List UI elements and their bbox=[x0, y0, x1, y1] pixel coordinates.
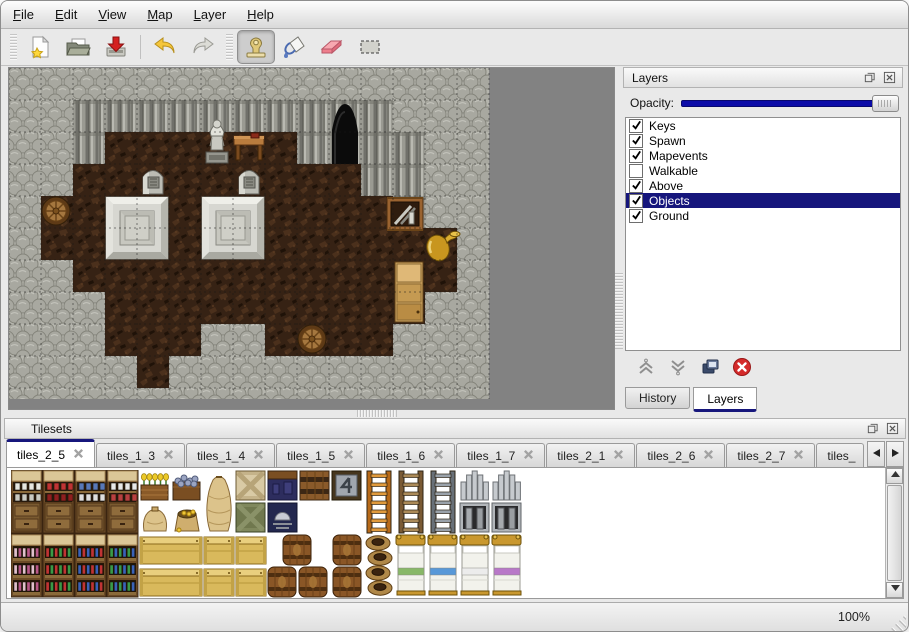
tileset-tab-label: tiles_1_7 bbox=[467, 449, 515, 463]
save-button[interactable] bbox=[97, 30, 135, 64]
zoom-level: 100% bbox=[838, 610, 870, 624]
tileset-tab-label: tiles_2_7 bbox=[737, 449, 785, 463]
layer-buttons bbox=[625, 355, 901, 383]
tileset-tile-shelf[interactable] bbox=[11, 470, 42, 533]
tileset-tile-crate-metal[interactable] bbox=[332, 471, 361, 500]
tileset-tile-bookshelf[interactable] bbox=[107, 534, 138, 597]
layer-label: Ground bbox=[649, 209, 689, 223]
tileset-tab-label: tiles_ bbox=[827, 449, 855, 463]
undo-button[interactable] bbox=[146, 30, 184, 64]
select-tool-button[interactable] bbox=[351, 30, 389, 64]
tileset-tile-crate-dark-blue[interactable] bbox=[268, 471, 297, 500]
stamp-icon bbox=[243, 34, 269, 60]
tileset-tabbar: tiles_2_5tiles_1_3tiles_1_4tiles_1_5tile… bbox=[6, 439, 904, 467]
tileset-tile-crate[interactable] bbox=[204, 569, 234, 596]
tileset-tab-tiles_1_6[interactable]: tiles_1_6 bbox=[366, 443, 455, 467]
tileset-tab-tiles_2_5[interactable]: tiles_2_5 bbox=[6, 439, 95, 467]
menu-file[interactable]: File bbox=[13, 7, 34, 22]
toolbar bbox=[1, 29, 908, 66]
scroll-tabs-right-button[interactable] bbox=[886, 441, 904, 467]
layer-checkbox-ground[interactable] bbox=[629, 209, 643, 223]
close-icon[interactable] bbox=[885, 421, 900, 436]
scrollbar-thumb[interactable] bbox=[887, 485, 902, 581]
layer-checkbox-spawn[interactable] bbox=[629, 134, 643, 148]
layers-panel: Layers Opacity: KeysSpawnMapeventsWalkab… bbox=[623, 67, 903, 413]
layer-label: Spawn bbox=[649, 134, 686, 148]
tileset-tile-bookshelf[interactable] bbox=[75, 534, 106, 597]
tileset-tab-tiles_2_7[interactable]: tiles_2_7 bbox=[726, 443, 815, 467]
layer-row-spawn[interactable]: Spawn bbox=[626, 133, 900, 148]
tilesets-panel-title: Tilesets bbox=[31, 422, 860, 436]
layer-label: Above bbox=[649, 179, 683, 193]
menu-help[interactable]: Help bbox=[247, 7, 274, 22]
new-file-icon bbox=[27, 34, 53, 60]
layers-panel-header: Layers bbox=[623, 67, 903, 88]
tileset-tile-bed[interactable] bbox=[396, 535, 425, 595]
map-canvas[interactable] bbox=[9, 68, 490, 399]
layer-label: Keys bbox=[649, 119, 676, 133]
toolbar-handle[interactable] bbox=[226, 34, 233, 60]
tileset-tab-label: tiles_1_5 bbox=[287, 449, 335, 463]
tileset-tab-tiles_1_3[interactable]: tiles_1_3 bbox=[96, 443, 185, 467]
tileset-tab-tiles_2_1[interactable]: tiles_2_1 bbox=[546, 443, 635, 467]
new-button[interactable] bbox=[21, 30, 59, 64]
redo-icon bbox=[190, 34, 216, 60]
tileset-tiles[interactable] bbox=[11, 470, 871, 598]
tileset-tile-sack-gold[interactable] bbox=[175, 510, 199, 532]
undo-icon bbox=[152, 34, 178, 60]
select-icon bbox=[357, 34, 383, 60]
tileset-tile-bed[interactable] bbox=[492, 535, 521, 595]
raise-layer-button[interactable] bbox=[634, 358, 657, 381]
opacity-slider-handle[interactable] bbox=[872, 95, 899, 112]
opacity-slider-track[interactable] bbox=[681, 100, 877, 107]
tileset-tile-barrel-front[interactable] bbox=[333, 567, 361, 597]
tileset-tab-label: tiles_2_1 bbox=[557, 449, 605, 463]
tileset-tile-planter[interactable] bbox=[141, 474, 169, 500]
tileset-tile-crate[interactable] bbox=[236, 537, 266, 564]
layer-checkbox-objects[interactable] bbox=[629, 194, 643, 208]
layer-checkbox-mapevents[interactable] bbox=[629, 149, 643, 163]
tileset-tab-tiles_1_4[interactable]: tiles_1_4 bbox=[186, 443, 275, 467]
tab-history[interactable]: History bbox=[625, 387, 690, 409]
tileset-tab-tiles_1_7[interactable]: tiles_1_7 bbox=[456, 443, 545, 467]
tilesets-panel-header: Tilesets bbox=[4, 418, 906, 439]
tileset-tile-bed[interactable] bbox=[428, 535, 457, 595]
tileset-tab-label: tiles_2_6 bbox=[647, 449, 695, 463]
tab-close-icon[interactable] bbox=[613, 449, 624, 463]
tileset-tile-bed[interactable] bbox=[460, 535, 489, 595]
layer-row-keys[interactable]: Keys bbox=[626, 118, 900, 133]
tileset-tile-crate-banded[interactable] bbox=[300, 471, 329, 500]
tileset-tile-ore-crate[interactable] bbox=[173, 475, 200, 500]
tileset-tab-nav bbox=[866, 441, 904, 467]
tileset-tab-label: tiles_1_4 bbox=[197, 449, 245, 463]
stamp-tool-button[interactable] bbox=[237, 30, 275, 64]
arrow-left-icon bbox=[872, 445, 881, 463]
duplicate-layer-button[interactable] bbox=[698, 358, 721, 381]
toolbar-handle[interactable] bbox=[10, 34, 17, 60]
statusbar: 100% bbox=[1, 602, 908, 632]
opacity-row: Opacity: bbox=[630, 94, 899, 111]
lower-icon bbox=[667, 356, 689, 383]
menu-edit[interactable]: Edit bbox=[55, 7, 77, 22]
layer-checkbox-walkable[interactable] bbox=[629, 164, 643, 178]
tileset-tile-crate-wide[interactable] bbox=[140, 537, 202, 564]
tileset-tile-shelf[interactable] bbox=[43, 470, 74, 533]
save-icon bbox=[103, 34, 129, 60]
tab-close-icon[interactable] bbox=[163, 449, 174, 463]
opacity-label: Opacity: bbox=[630, 96, 674, 110]
layer-label: Mapevents bbox=[649, 149, 708, 163]
open-folder-icon bbox=[65, 34, 91, 60]
scroll-up-icon[interactable] bbox=[886, 468, 903, 484]
tileset-tab-tiles_2_6[interactable]: tiles_2_6 bbox=[636, 443, 725, 467]
layer-list: KeysSpawnMapeventsWalkableAboveObjectsGr… bbox=[625, 117, 901, 351]
tab-close-icon[interactable] bbox=[73, 448, 84, 462]
tileset-tab-label: tiles_2_5 bbox=[17, 448, 65, 462]
scroll-tabs-left-button[interactable] bbox=[867, 441, 885, 467]
tab-close-icon[interactable] bbox=[793, 449, 804, 463]
open-button[interactable] bbox=[59, 30, 97, 64]
gravestone-sprite bbox=[143, 171, 163, 195]
eraser-tool-button[interactable] bbox=[313, 30, 351, 64]
tab-close-icon[interactable] bbox=[523, 449, 534, 463]
tilesets-panel: Tilesets tiles_2_5tiles_1_3tiles_1_4tile… bbox=[4, 418, 906, 601]
layer-label: Walkable bbox=[649, 164, 698, 178]
weapons-crate-sprite bbox=[387, 198, 423, 230]
layer-row-objects[interactable]: Objects bbox=[626, 193, 900, 208]
tileset-tab-label: tiles_1_6 bbox=[377, 449, 425, 463]
raise-icon bbox=[635, 356, 657, 383]
panel-tabs: HistoryLayers bbox=[625, 387, 760, 413]
fill-icon bbox=[281, 34, 307, 60]
layer-row-above[interactable]: Above bbox=[626, 178, 900, 193]
layer-checkbox-above[interactable] bbox=[629, 179, 643, 193]
app-window: FileEditViewMapLayerHelp Layers Opacity:… bbox=[0, 0, 909, 632]
tileset-tile-crate-x-dark[interactable] bbox=[236, 503, 265, 532]
delete-layer-button[interactable] bbox=[730, 358, 753, 381]
layer-checkbox-keys[interactable] bbox=[629, 119, 643, 133]
tab-close-icon[interactable] bbox=[433, 449, 444, 463]
tileset-tile-shelf[interactable] bbox=[107, 470, 138, 533]
eraser-icon bbox=[319, 34, 345, 60]
arrow-right-icon bbox=[891, 445, 900, 463]
tileset-tile-crate-armor[interactable] bbox=[268, 503, 297, 532]
gravestone-sprite bbox=[239, 171, 259, 195]
layer-row-mapevents[interactable]: Mapevents bbox=[626, 148, 900, 163]
tab-close-icon[interactable] bbox=[253, 449, 264, 463]
layer-row-walkable[interactable]: Walkable bbox=[626, 163, 900, 178]
tileset-tab-tiles_1_5[interactable]: tiles_1_5 bbox=[276, 443, 365, 467]
float-icon[interactable] bbox=[865, 421, 880, 436]
tileset-tile-crate-x-light[interactable] bbox=[236, 471, 265, 500]
tileset-tab-label: tiles_1_3 bbox=[107, 449, 155, 463]
duplicate-icon bbox=[699, 356, 721, 383]
tileset-tile-crate[interactable] bbox=[204, 537, 234, 564]
layer-row-ground[interactable]: Ground bbox=[626, 208, 900, 223]
map-view[interactable] bbox=[8, 67, 615, 410]
opacity-slider[interactable] bbox=[681, 94, 899, 111]
layer-label: Objects bbox=[649, 194, 690, 208]
menu-map[interactable]: Map bbox=[147, 7, 172, 22]
fill-tool-button[interactable] bbox=[275, 30, 313, 64]
toolbar-separator bbox=[140, 35, 141, 59]
vertical-splitter[interactable] bbox=[615, 273, 623, 349]
resize-grip[interactable] bbox=[889, 614, 906, 631]
menu-layer[interactable]: Layer bbox=[194, 7, 227, 22]
close-icon[interactable] bbox=[882, 70, 897, 85]
delete-icon bbox=[731, 356, 753, 383]
redo-button[interactable] bbox=[184, 30, 222, 64]
tileset-tile-crate[interactable] bbox=[236, 569, 266, 596]
lower-layer-button[interactable] bbox=[666, 358, 689, 381]
tileset-tile-bookshelf[interactable] bbox=[43, 534, 74, 597]
tileset-scrollbar[interactable] bbox=[885, 468, 903, 598]
layers-panel-title: Layers bbox=[632, 71, 857, 85]
tab-close-icon[interactable] bbox=[703, 449, 714, 463]
horizontal-splitter[interactable] bbox=[357, 410, 397, 417]
tileset-tile-crate-wide[interactable] bbox=[140, 569, 202, 596]
tileset-tile-shelf[interactable] bbox=[75, 470, 106, 533]
tileset-tab-tiles_[interactable]: tiles_ bbox=[816, 443, 864, 467]
tab-close-icon[interactable] bbox=[343, 449, 354, 463]
tileset-tile-bookshelf[interactable] bbox=[11, 534, 42, 597]
tileset-tile-barrel-front[interactable] bbox=[333, 535, 361, 565]
menu-view[interactable]: View bbox=[98, 7, 126, 22]
tileset-tile-sack-tall[interactable] bbox=[207, 477, 231, 532]
tab-layers[interactable]: Layers bbox=[693, 387, 757, 412]
tileset-canvas[interactable] bbox=[6, 467, 904, 599]
scroll-down-icon[interactable] bbox=[886, 582, 903, 598]
menubar: FileEditViewMapLayerHelp bbox=[1, 1, 908, 29]
barrel-sprite bbox=[298, 325, 326, 353]
float-icon[interactable] bbox=[862, 70, 877, 85]
barrel-sprite bbox=[42, 197, 70, 225]
